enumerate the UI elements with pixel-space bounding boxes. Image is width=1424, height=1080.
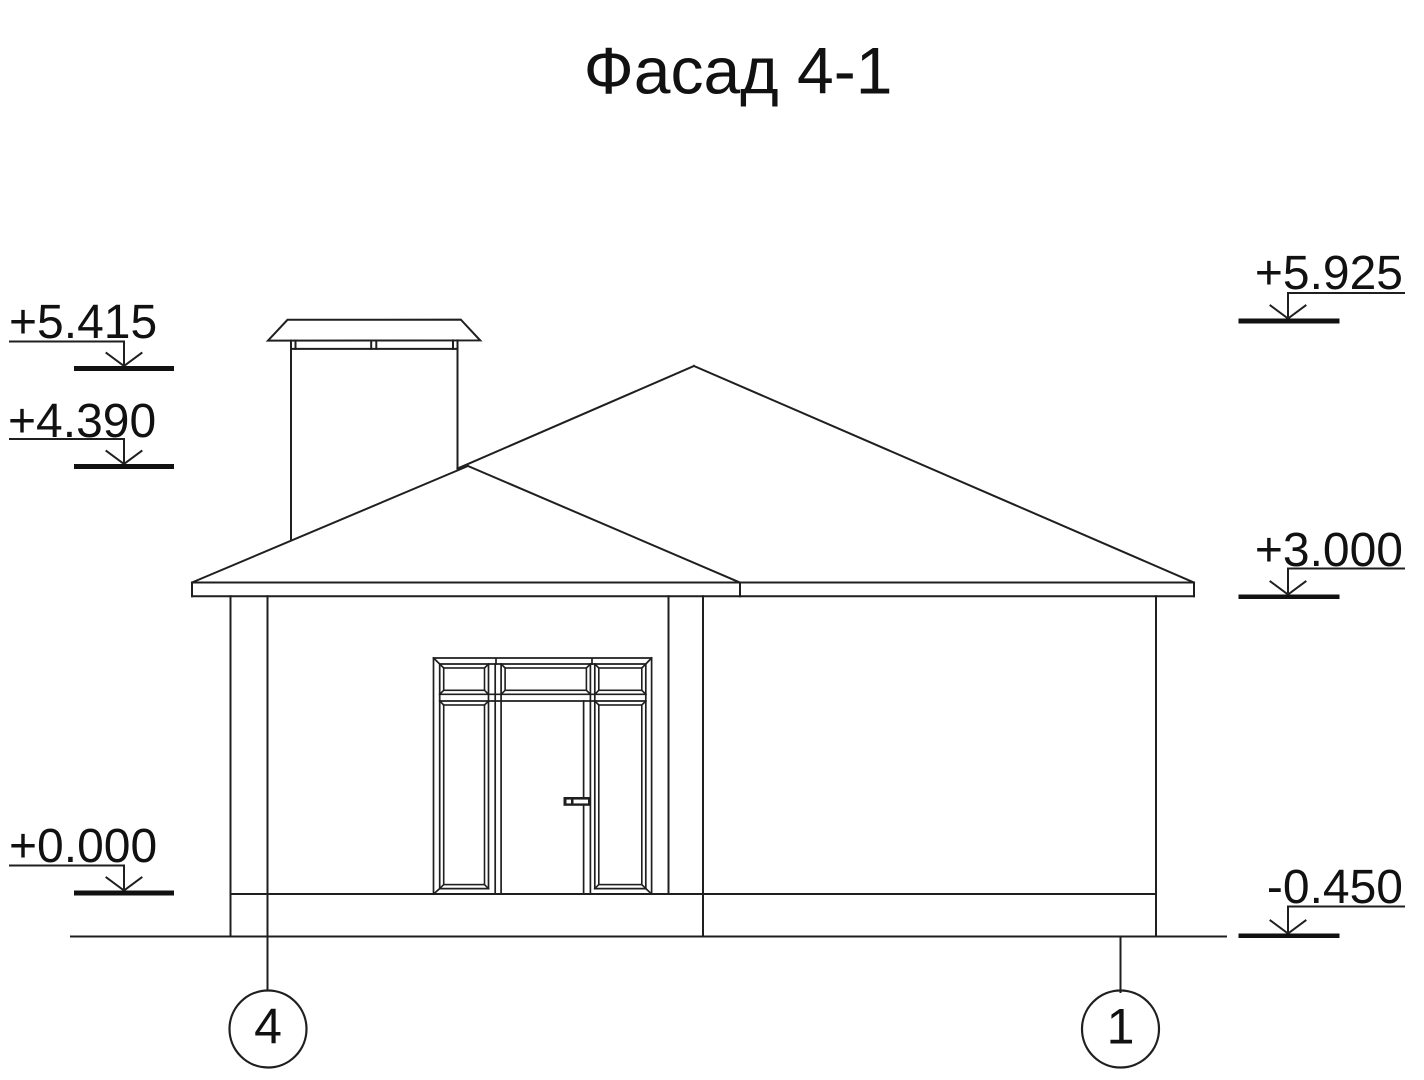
svg-text:1: 1 [1107, 999, 1135, 1055]
svg-text:4: 4 [254, 999, 282, 1055]
svg-text:Фасад 4-1: Фасад 4-1 [584, 34, 893, 108]
svg-text:+4.390: +4.390 [8, 395, 156, 448]
